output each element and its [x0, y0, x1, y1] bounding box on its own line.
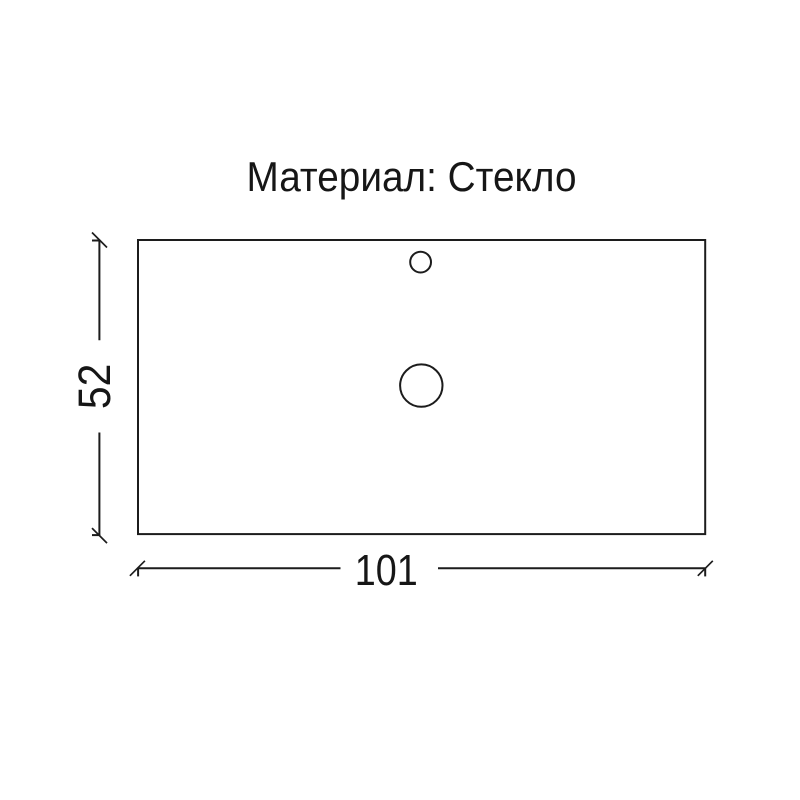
svg-text:101: 101 [355, 546, 418, 595]
svg-text:52: 52 [69, 364, 120, 410]
svg-text:Материал: Стекло: Материал: Стекло [247, 153, 577, 200]
